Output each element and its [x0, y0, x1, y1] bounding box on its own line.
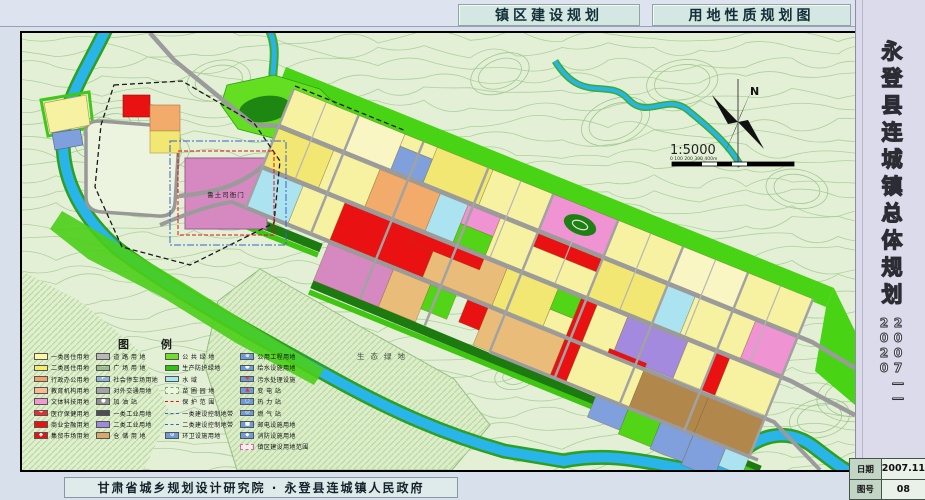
- legend-item: ◉污水处理设施: [240, 375, 308, 384]
- legend-item: 文体科技用地: [34, 397, 89, 406]
- legend-item: +医疗保健用地: [34, 408, 89, 417]
- legend-column: ⊕公用工程用地●给水设施用地◉污水处理设施▲变 电 站○热 力 站◎燃 气 站■…: [240, 352, 308, 454]
- legend-swatch: [34, 365, 48, 372]
- title-block-sidebar: 永登县连城镇总体规划 2007——2020 日期 2007.11 图号 08: [855, 0, 925, 500]
- admin-parcel-nw: [150, 105, 180, 131]
- legend-label: 商业金融用地: [51, 420, 89, 429]
- residential-parcel-nw: [150, 131, 180, 153]
- legend-label: 一类工业用地: [113, 409, 151, 418]
- legend-swatch: [96, 432, 110, 439]
- legend-swatch: ●: [240, 365, 254, 372]
- legend-swatch: [165, 353, 179, 360]
- legend-item: ○热 力 站: [240, 397, 308, 406]
- date-value: 2007.11: [881, 459, 925, 480]
- legend-swatch: [165, 398, 179, 405]
- legend-swatch: ●: [96, 398, 110, 405]
- legend-item: 商业金融用地: [34, 420, 89, 429]
- legend-swatch: [96, 421, 110, 428]
- legend-swatch: [96, 410, 110, 417]
- legend-label: 行政办公用地: [51, 375, 89, 384]
- legend-label: 消防设施用地: [257, 431, 295, 440]
- legend-swatch: ○: [240, 398, 254, 405]
- planning-sheet: 镇区建设规划 用地性质规划图: [0, 0, 925, 500]
- legend-label: 医疗保健用地: [51, 409, 89, 418]
- legend-swatch: [165, 421, 179, 428]
- sheet-number-value: 08: [881, 479, 925, 500]
- map-canvas: 鲁土司衙门 生态绿地 N 1:5000 0 100 200 300 400m: [20, 31, 857, 472]
- legend-swatch: [34, 398, 48, 405]
- legend-item: ∙∙广 场 用 地: [96, 363, 158, 372]
- drawing-info-table: 日期 2007.11 图号 08: [849, 458, 925, 500]
- legend-swatch: [96, 387, 110, 394]
- legend-column: 公 共 绿 地生产防护绿地水 域苗 圃 园 地保 护 范 围一类建设控制地带二类…: [165, 352, 233, 454]
- legend-swatch: [34, 387, 48, 394]
- legend-item: ⊙环卫设施用地: [165, 431, 233, 440]
- title-construction-plan-label: 镇区建设规划: [495, 5, 603, 25]
- legend-item: ⊕公用工程用地: [240, 352, 308, 361]
- legend-label: 苗 圃 园 地: [182, 386, 215, 395]
- legend-swatch: ◆: [34, 432, 48, 439]
- legend-label: 污水处理设施: [257, 375, 295, 384]
- legend-swatch: [165, 376, 179, 383]
- north-label: N: [750, 85, 759, 98]
- legend-item: 保 护 范 围: [165, 397, 233, 406]
- legend-swatch: [165, 365, 179, 372]
- legend-label: 二类工业用地: [113, 420, 151, 429]
- title-landuse-map: 用地性质规划图: [652, 4, 851, 26]
- legend-label: 环卫设施用地: [182, 431, 220, 440]
- legend-item: 镇区建设用地范围: [240, 442, 308, 451]
- legend-item: ●给水设施用地: [240, 363, 308, 372]
- legend-item: 苗 圃 园 地: [165, 386, 233, 395]
- legend-swatch: [165, 410, 179, 417]
- legend-swatch: +: [34, 410, 48, 417]
- legend-column: 道 路 用 地∙∙广 场 用 地P社会停车场用地对外交通用地●加 油 站一类工业…: [96, 352, 158, 454]
- legend-label: 文体科技用地: [51, 397, 89, 406]
- legend-item: 一类建设控制地带: [165, 408, 233, 417]
- legend-columns: 一类居住用地二类居住用地行政办公用地教育机构用地文体科技用地+医疗保健用地商业金…: [34, 352, 316, 454]
- legend-item: 二类居住用地: [34, 363, 89, 372]
- legend-label: 燃 气 站: [257, 409, 281, 418]
- eco-green-label: 生态绿地: [357, 351, 411, 361]
- legend-label: 变 电 站: [257, 386, 281, 395]
- legend-item: 公 共 绿 地: [165, 352, 233, 361]
- legend-item: ◎燃 气 站: [240, 408, 308, 417]
- legend-label: 二类建设控制地带: [182, 420, 233, 429]
- table-row: 日期 2007.11: [850, 459, 925, 480]
- legend-item: 生产防护绿地: [165, 363, 233, 372]
- legend-item: ◆消防设施用地: [240, 431, 308, 440]
- legend-item: 水 域: [165, 375, 233, 384]
- legend-swatch: ∙∙: [96, 365, 110, 372]
- sheet-number-label: 图号: [850, 479, 882, 500]
- map-legend: 图 例 一类居住用地二类居住用地行政办公用地教育机构用地文体科技用地+医疗保健用…: [34, 336, 339, 468]
- plan-period-vertical: 2007——2020: [856, 316, 925, 458]
- date-label: 日期: [850, 459, 882, 480]
- legend-swatch: [34, 353, 48, 360]
- legend-item: ■邮电设施用地: [240, 420, 308, 429]
- legend-label: 对外交通用地: [113, 386, 151, 395]
- legend-label: 保 护 范 围: [182, 397, 215, 406]
- legend-label: 镇区建设用地范围: [257, 442, 308, 451]
- legend-label: 邮电设施用地: [257, 420, 295, 429]
- title-construction-plan: 镇区建设规划: [458, 4, 640, 26]
- legend-swatch: P: [96, 376, 110, 383]
- legend-item: ●加 油 站: [96, 397, 158, 406]
- title-landuse-map-label: 用地性质规划图: [689, 5, 815, 25]
- legend-label: 社会停车场用地: [113, 375, 158, 384]
- commercial-parcel-nw: [123, 95, 150, 117]
- legend-swatch: ⊕: [240, 353, 254, 360]
- legend-label: 广 场 用 地: [113, 363, 146, 372]
- legend-item: 二类建设控制地带: [165, 420, 233, 429]
- legend-label: 水 域: [182, 375, 197, 384]
- legend-swatch: ◉: [240, 376, 254, 383]
- legend-item: 仓 储 用 地: [96, 431, 158, 440]
- legend-label: 集贸市场用地: [51, 431, 89, 440]
- legend-item: ▲变 电 站: [240, 386, 308, 395]
- legend-label: 一类建设控制地带: [182, 409, 233, 418]
- legend-swatch: ▲: [240, 387, 254, 394]
- legend-swatch: ◎: [240, 410, 254, 417]
- legend-swatch: [165, 387, 179, 394]
- legend-swatch: ■: [240, 421, 254, 428]
- legend-label: 一类居住用地: [51, 352, 89, 361]
- legend-label: 公用工程用地: [257, 352, 295, 361]
- institution-credit: 甘肃省城乡规划设计研究院 · 永登县连城镇人民政府: [64, 477, 458, 498]
- legend-label: 给水设施用地: [257, 363, 295, 372]
- legend-item: 教育机构用地: [34, 386, 89, 395]
- legend-swatch: [96, 353, 110, 360]
- heritage-site-label: 鲁土司衙门: [207, 190, 245, 199]
- table-row: 图号 08: [850, 479, 925, 500]
- legend-label: 仓 储 用 地: [113, 431, 146, 440]
- legend-item: 一类居住用地: [34, 352, 89, 361]
- legend-item: ◆集贸市场用地: [34, 431, 89, 440]
- scale-ratio-label: 1:5000: [670, 143, 716, 158]
- legend-label: 加 油 站: [113, 397, 137, 406]
- legend-label: 教育机构用地: [51, 386, 89, 395]
- legend-swatch: [34, 421, 48, 428]
- legend-label: 公 共 绿 地: [182, 352, 215, 361]
- legend-swatch: ⊙: [165, 432, 179, 439]
- legend-item: 一类工业用地: [96, 408, 158, 417]
- drawing-title-vertical: 永登县连城镇总体规划: [856, 34, 925, 316]
- legend-item: 行政办公用地: [34, 375, 89, 384]
- legend-label: 道 路 用 地: [113, 352, 146, 361]
- legend-item: 二类工业用地: [96, 420, 158, 429]
- legend-swatch: [240, 444, 254, 451]
- legend-item: 道 路 用 地: [96, 352, 158, 361]
- legend-swatch: ◆: [240, 432, 254, 439]
- legend-title: 图 例: [118, 336, 186, 352]
- legend-item: 对外交通用地: [96, 386, 158, 395]
- legend-column: 一类居住用地二类居住用地行政办公用地教育机构用地文体科技用地+医疗保健用地商业金…: [34, 352, 89, 454]
- legend-swatch: [34, 376, 48, 383]
- scale-tick-labels: 0 100 200 300 400m: [670, 156, 717, 162]
- legend-label: 生产防护绿地: [182, 363, 220, 372]
- legend-label: 热 力 站: [257, 397, 281, 406]
- legend-label: 二类居住用地: [51, 363, 89, 372]
- legend-item: P社会停车场用地: [96, 375, 158, 384]
